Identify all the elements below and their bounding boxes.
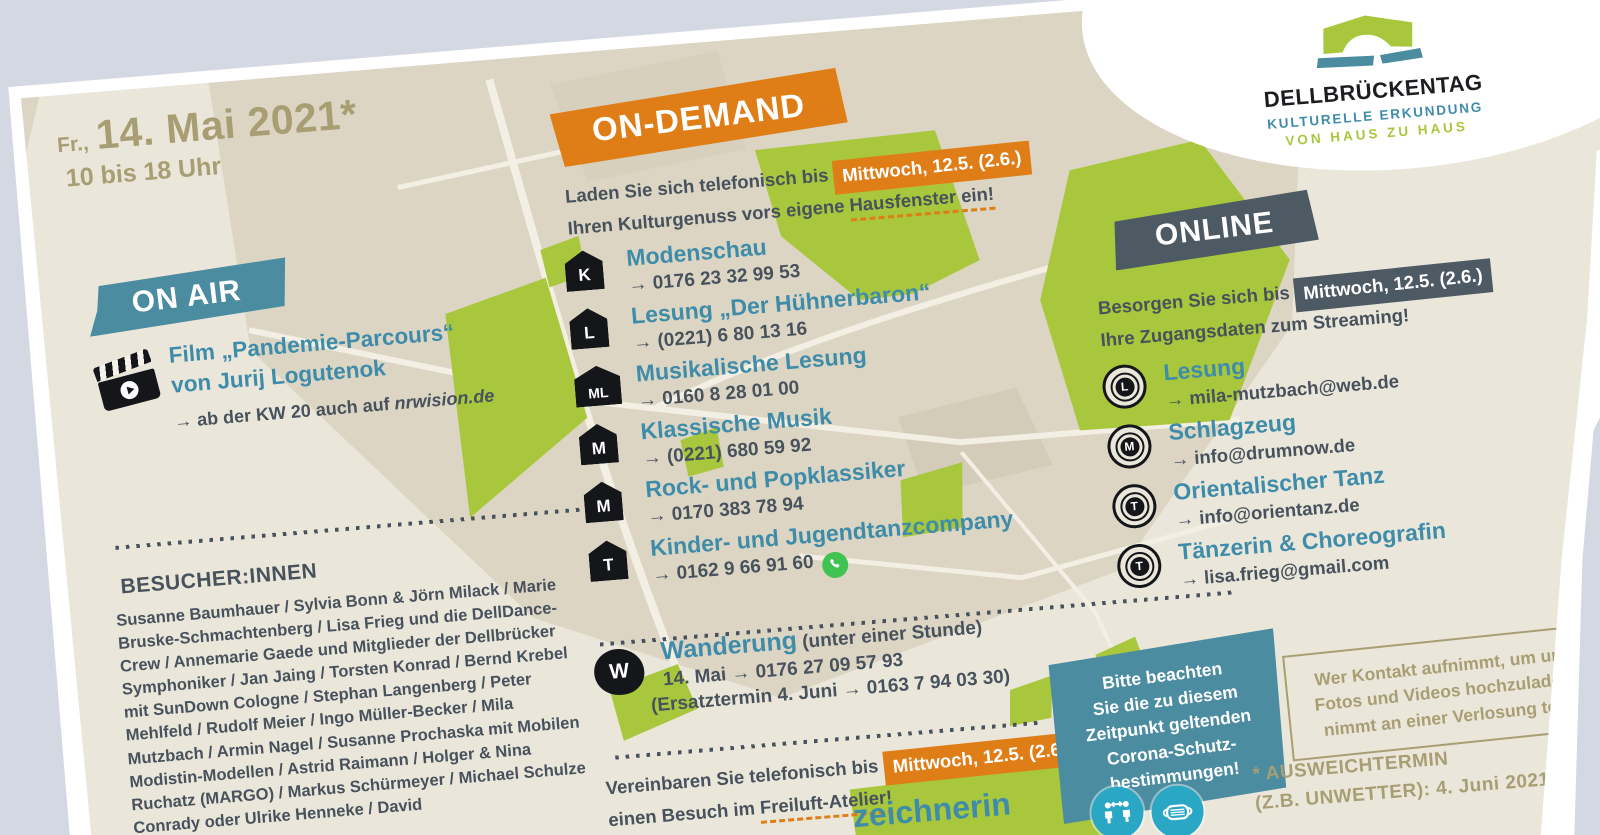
play-icon: [119, 379, 141, 401]
house-M-icon: M: [583, 480, 624, 523]
circle-T-icon: T: [1111, 483, 1158, 530]
date-prefix: Fr.,: [56, 132, 89, 159]
poster-page: Fr., 14. Mai 2021* 10 bis 18 Uhr ON AIR …: [0, 0, 1600, 835]
house-L-icon: L: [568, 307, 609, 350]
circle-L-icon: L: [1101, 363, 1148, 410]
tilted-poster: Fr., 14. Mai 2021* 10 bis 18 Uhr ON AIR …: [0, 0, 1600, 835]
online-list: L Lesung → mila-mutzbach@web.de M Schlag…: [1101, 332, 1541, 626]
event-item: Klassische Musik → (0221) 680 59 92: [640, 403, 835, 471]
event-item: Schlagzeug → info@drumnow.de: [1167, 404, 1356, 471]
dellbrueckentag-logo: DELLBRÜCKENTAG KULTURELLE ERKUNDUNG VON …: [1217, 0, 1527, 153]
circle-T-icon: T: [1116, 542, 1163, 589]
bridge-icon: [1307, 7, 1432, 79]
house-M-icon: M: [578, 422, 619, 465]
event-item: Musikalische Lesung → 0160 8 28 01 00: [635, 342, 870, 413]
visitors-name-list: Susanne Baumhauer / Sylvia Bonn & Jörn M…: [115, 567, 652, 835]
circle-M-icon: M: [1106, 423, 1153, 470]
event-item: Tänzerin & Choreografin → lisa.frieg@gma…: [1177, 517, 1449, 591]
whatsapp-icon: [821, 551, 849, 579]
event-item: Orientalischer Tanz → info@orientanz.de: [1172, 462, 1387, 531]
house-ML-icon: ML: [573, 364, 622, 408]
house-K-icon: K: [564, 249, 605, 292]
on-demand-list: K Modenschau → 0176 23 32 99 53 L Lesung…: [563, 212, 1051, 608]
house-T-icon: T: [587, 539, 628, 582]
